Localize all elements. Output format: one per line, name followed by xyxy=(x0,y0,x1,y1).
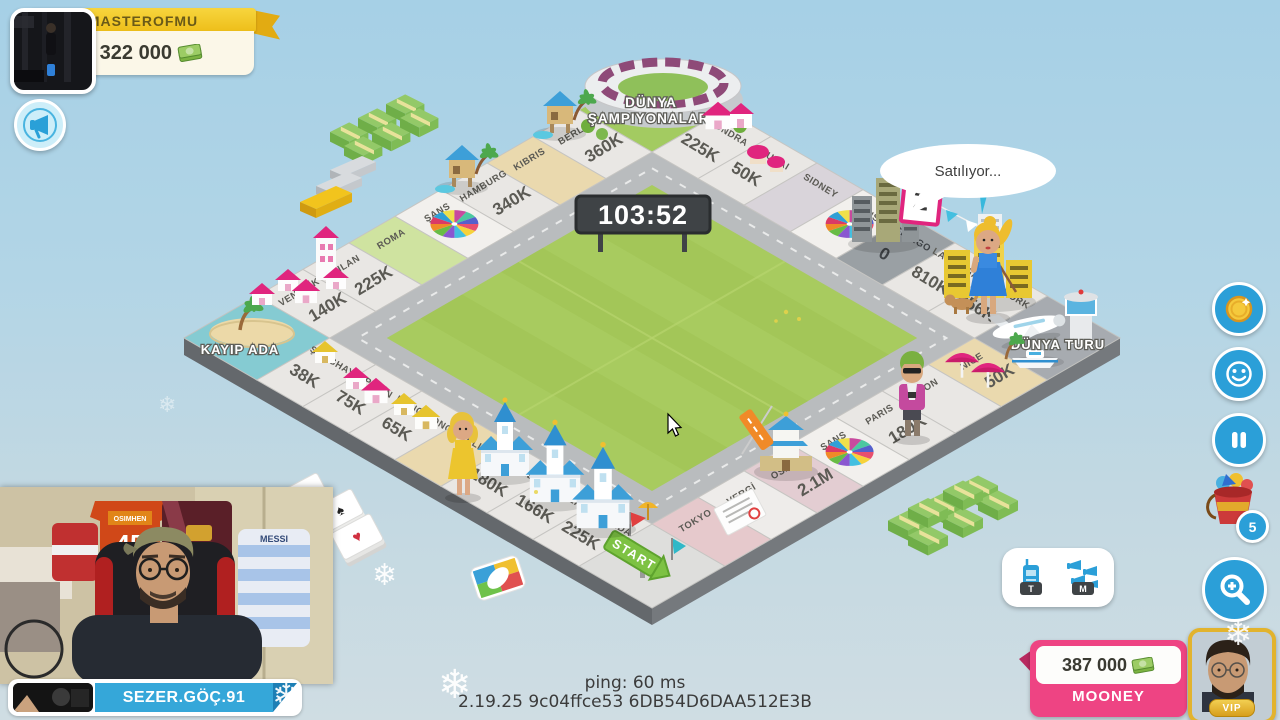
speech-bubble-text: Satılıyor... xyxy=(935,163,1002,180)
game-screen: LONDRA225KDUBAI50KSIDNEYŞANSŞİKAGO0LAS V… xyxy=(0,0,1280,720)
lost-island-label: KAYIP ADA xyxy=(201,342,280,357)
talk-button[interactable]: T xyxy=(1008,552,1054,598)
status-bar: ping: 60 ms 2.19.25 9c04ffce53 6DB54D6DA… xyxy=(435,674,835,712)
announce-button[interactable] xyxy=(14,99,66,151)
mute-label: M xyxy=(1072,582,1094,595)
streamer-name-band: SEZER.GÖÇ.91 xyxy=(95,683,273,712)
gold-bar xyxy=(300,186,352,218)
webcam-video: OSIMHEN 45 MESSI xyxy=(0,487,333,684)
mute-button[interactable]: M xyxy=(1060,552,1106,598)
coin-button[interactable] xyxy=(1212,282,1266,336)
gym-photo xyxy=(14,12,84,82)
cash-icon xyxy=(1131,657,1155,674)
toys-badge: 5 xyxy=(1236,510,1269,543)
pause-icon xyxy=(1223,424,1255,456)
zoom-button[interactable] xyxy=(1202,557,1267,622)
pause-button[interactable] xyxy=(1212,413,1266,467)
jersey-name: MESSI xyxy=(260,534,288,544)
money-pile-top-left xyxy=(300,94,438,218)
vip-badge: VIP xyxy=(1209,699,1255,717)
cash-icon xyxy=(177,44,203,62)
streamer-name: SEZER.GÖÇ.91 xyxy=(123,689,245,707)
talk-label: T xyxy=(1020,582,1042,595)
world-tour-label: DÜNYA TURU xyxy=(1011,337,1105,352)
version-text: 2.19.25 9c04ffce53 6DB54D6DAA512E3B xyxy=(435,693,835,712)
chance-wheel xyxy=(430,210,478,238)
magnifier-plus-icon xyxy=(1214,569,1256,611)
color-card xyxy=(469,554,527,602)
emote-button[interactable] xyxy=(1212,347,1266,401)
bottom-player-name: MOONEY xyxy=(1036,688,1181,705)
bottom-player-money: 387 000 xyxy=(1062,655,1127,676)
top-player-money: 1 322 000 xyxy=(83,42,172,65)
gold-coin-icon xyxy=(1223,293,1255,325)
streamer-thumbnail xyxy=(13,683,93,712)
streamer-banner-fold xyxy=(273,683,297,712)
chance-wheel xyxy=(826,438,874,466)
webcam-overlay: OSIMHEN 45 MESSI xyxy=(0,487,333,684)
bottom-player-money-panel: 387 000 xyxy=(1036,646,1181,684)
voice-panel: T M xyxy=(1002,548,1114,607)
top-player-avatar xyxy=(10,8,96,94)
svg-text:ŞAMPIYONALARI: ŞAMPIYONALARI xyxy=(588,111,714,126)
jersey-name: OSIMHEN xyxy=(114,516,147,523)
ping-text: ping: 60 ms xyxy=(435,674,835,693)
megaphone-icon xyxy=(23,108,57,142)
money-pile-bottom-right xyxy=(888,476,1018,556)
smiley-icon xyxy=(1223,358,1255,390)
top-player-name: MASTEROFMU xyxy=(88,13,198,29)
vip-label: VIP xyxy=(1222,703,1241,714)
jersey-red xyxy=(52,523,98,581)
toys-badge-count: 5 xyxy=(1249,519,1257,535)
timer-value: 103:52 xyxy=(598,200,688,230)
svg-text:DÜNYA: DÜNYA xyxy=(625,95,677,110)
